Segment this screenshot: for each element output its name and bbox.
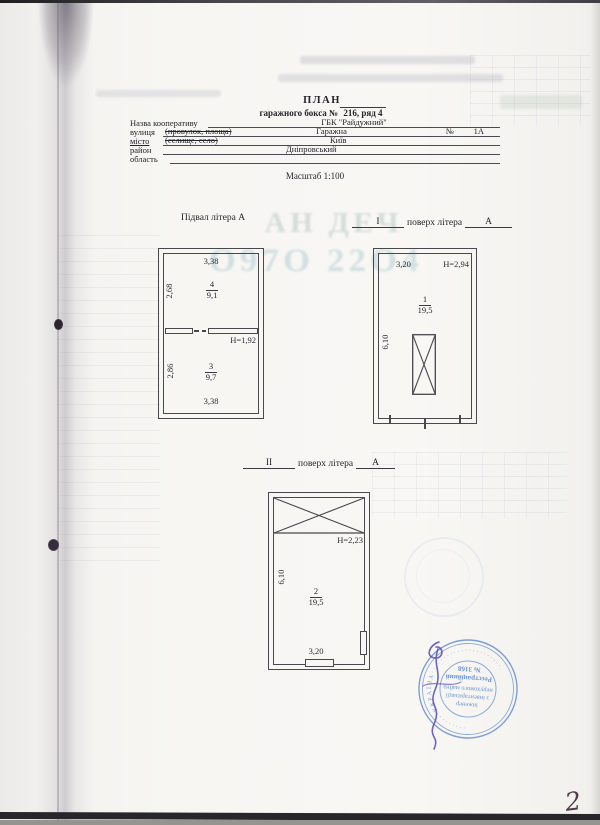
room-number: 2 — [310, 587, 322, 598]
dimension-bottom: 3,38 — [191, 396, 231, 406]
room-area: 9,1 — [197, 291, 227, 300]
room-number: 4 — [206, 280, 218, 291]
partition-wall-left — [165, 328, 193, 334]
scan-top-edge — [0, 0, 600, 3]
handwritten-page-number: 2 — [563, 786, 582, 817]
floor-number-blank: II — [243, 458, 295, 469]
floor2-plan-title: II поверх літера А — [243, 458, 395, 469]
field-label: область — [130, 154, 170, 164]
doorway-dash — [194, 330, 199, 332]
room-3-label: 3 9,7 — [196, 362, 226, 382]
doorway-dash — [202, 330, 206, 332]
room-number: 3 — [205, 362, 217, 373]
basement-plan-drawing: 3,38 2,68 4 9,1 H=1,92 2,86 3 9,7 3,38 — [158, 248, 264, 419]
room-number: 1 — [419, 295, 431, 306]
dimension-top: 3,38 — [191, 256, 231, 266]
basement-plan-title: Підвал літера А — [181, 213, 245, 223]
staple-hole — [48, 539, 59, 551]
letter-blank: А — [356, 458, 395, 469]
district-value: Дніпровський — [286, 144, 337, 154]
letter-blank: А — [465, 217, 512, 228]
bleed-through-artifact — [300, 56, 475, 64]
page-fold-shadow-top — [36, 0, 96, 140]
partition-wall-right — [208, 328, 258, 334]
scale-label: Масштаб 1:100 — [255, 171, 375, 181]
dimension-left-top: 2,68 — [164, 279, 174, 303]
room-area: 19,5 — [301, 598, 331, 607]
ceiling-height-label: H=2,94 — [430, 259, 469, 269]
scan-bottom-edge-light — [0, 820, 600, 825]
bleed-through-rules — [60, 235, 160, 565]
floor1-plan-title: I поверх літера А — [352, 217, 512, 228]
field-line — [170, 153, 500, 164]
paper-right-edge-shadow — [591, 0, 600, 825]
floor-title-text: поверх літера — [404, 218, 465, 228]
page-fold-line — [57, 0, 59, 825]
room-area: 19,5 — [410, 306, 440, 315]
dimension-left-bottom: 2,86 — [165, 359, 175, 383]
floor-number-blank: I — [352, 217, 404, 228]
bleed-through-grid — [470, 55, 590, 125]
signature-stroke — [423, 682, 461, 686]
floor-title-text: поверх літера — [295, 459, 356, 469]
scanned-document-page: АН ДЕЧ О97О 22О4 ПЛАН гаражного бокса № … — [0, 0, 600, 825]
wall-opening-symbol — [360, 631, 367, 655]
floor1-plan-drawing: 3,20 H=2,94 1 19,5 6,10 — [373, 248, 477, 424]
dimension-bottom: 3,20 — [299, 646, 333, 656]
number-sign: № — [446, 126, 454, 136]
dimension-left: 6,10 — [276, 565, 286, 589]
floor2-plan-drawing: H=2,23 6,10 2 19,5 3,20 — [268, 492, 370, 670]
inspection-pit-symbol — [412, 334, 436, 395]
dimension-top: 3,20 — [396, 259, 422, 269]
signature — [405, 622, 495, 752]
bleed-through-stamp-circle-inner — [416, 549, 470, 603]
door-height-label: H=1,92 — [217, 335, 256, 345]
room-area: 9,7 — [196, 373, 226, 382]
signature-stroke — [429, 642, 442, 658]
bleed-through-artifact — [96, 90, 221, 97]
document-title: ПЛАН — [262, 95, 382, 106]
ceiling-height-label: H=2,23 — [319, 535, 363, 545]
room-1-label: 1 19,5 — [410, 295, 440, 315]
signature-stroke — [432, 649, 438, 749]
room-2-label: 2 19,5 — [301, 587, 331, 607]
crossed-area-symbol — [273, 497, 365, 534]
floor-hatch-symbol — [305, 659, 334, 667]
building-number-value: 1А — [474, 126, 484, 136]
bleed-through-grid — [372, 452, 567, 518]
gate-jamb — [389, 415, 391, 423]
room-4-label: 4 9,1 — [197, 280, 227, 300]
gate-center-tick — [424, 418, 426, 429]
gate-jamb — [459, 415, 461, 423]
dimension-left: 6,10 — [380, 330, 390, 354]
form-row-region: область — [130, 154, 500, 164]
